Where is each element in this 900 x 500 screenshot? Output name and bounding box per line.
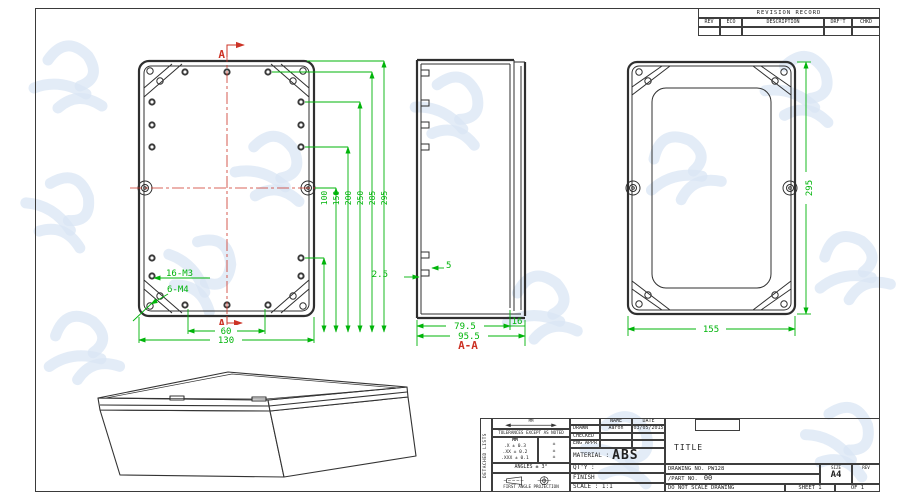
front-dimensions: 155 295 xyxy=(628,62,815,336)
boss-tabs xyxy=(421,70,429,276)
projection-cell: FIRST ANGLE PROJECTION xyxy=(492,473,570,492)
checked-name-cell xyxy=(600,433,632,440)
material-label: MATERIAL : xyxy=(573,453,609,460)
side-strip-label: DETACHED LISTS xyxy=(484,433,489,478)
revision-table: REVISION RECORD REV ECO DESCRIPTION DRF'… xyxy=(698,8,880,36)
label-6-M4: 6-M4 xyxy=(167,285,189,295)
logo-box xyxy=(695,419,740,431)
angles-cell: ANGLES ± 3° xyxy=(492,463,570,473)
eng-appr-label: ENG APPR xyxy=(570,440,600,448)
section-title: A-A xyxy=(458,339,478,352)
section-letter-top: A xyxy=(218,48,225,61)
tolerance-values: MM .X ± 0.3 .XX ± 0.2 .XXX ± 0.1 xyxy=(492,437,538,463)
section-dimensions: 5 2.5 79.5 16 95.5 xyxy=(372,261,525,346)
tolerance-note: TOLERANCES EXCEPT AS NOTED xyxy=(492,429,570,437)
dim-2-5: 2.5 xyxy=(372,270,388,280)
name-header: NAME xyxy=(600,418,632,425)
eco-empty-cell xyxy=(720,27,742,36)
lid-outline xyxy=(652,88,771,288)
isometric-view xyxy=(98,372,416,477)
drawing-no-cell: DRAWING NO. PW128 xyxy=(665,464,820,474)
blank-header-cell xyxy=(570,418,600,425)
units-arrow-icon xyxy=(503,423,559,428)
section-view: 5 2.5 79.5 16 95.5 A-A xyxy=(372,60,525,352)
part-no-value: 00 xyxy=(704,475,712,483)
drawn-name: Aaron xyxy=(600,425,632,433)
date-header: DATE xyxy=(632,418,665,425)
chkd-empty-cell xyxy=(852,27,880,36)
finish-cell: FINISH xyxy=(570,473,665,483)
section-outline xyxy=(417,60,525,318)
part-no-cell: /PART NO. 00 xyxy=(665,474,820,484)
tolerance-row-3: .XXX ± 0.1 xyxy=(493,456,537,462)
material-cell: MATERIAL : ABS xyxy=(570,448,665,464)
checked-date-cell xyxy=(632,433,665,440)
dim-295-left: 295 xyxy=(380,191,389,206)
material-value: ABS xyxy=(612,449,638,463)
size-value: A4 xyxy=(831,471,842,481)
dim-150: 150 xyxy=(332,191,341,206)
description-col-header: DESCRIPTION xyxy=(742,18,824,27)
projection-label: FIRST ANGLE PROJECTION xyxy=(503,485,558,490)
sheet-cell: SHEET 1 xyxy=(785,484,835,492)
rev-cell: REV xyxy=(852,464,880,484)
drft-col-header: DRF'T xyxy=(824,18,852,27)
dim-5: 5 xyxy=(446,261,451,271)
dim-285: 285 xyxy=(368,191,377,206)
dim-295-right: 295 xyxy=(805,180,815,196)
drawn-label: DRAWN xyxy=(570,425,600,433)
units-cell: MM xyxy=(492,418,570,429)
section-marker-top: A xyxy=(218,45,244,61)
rev-empty-cell xyxy=(698,27,720,36)
chkd-col-header: CHKD xyxy=(852,18,880,27)
checked-label: CHECKED xyxy=(570,433,600,440)
front-view: 155 295 xyxy=(626,62,815,336)
dim-130: 130 xyxy=(218,336,234,346)
eco-col-header: ECO xyxy=(720,18,742,27)
part-no-label: /PART NO. xyxy=(668,476,698,482)
title-block: DETACHED LISTS MM TOLERANCES EXCEPT AS N… xyxy=(480,418,880,492)
height-dimensions: 100 150 200 250 285 295 xyxy=(272,61,389,332)
label-16-M3: 16-M3 xyxy=(166,269,193,279)
revision-table-title: REVISION RECORD xyxy=(698,8,880,18)
side-strip: DETACHED LISTS xyxy=(480,418,492,492)
dim-200: 200 xyxy=(344,191,353,206)
eng-appr-name-cell xyxy=(600,440,632,448)
tolerance-marks: ± ± ± xyxy=(538,437,570,463)
do-not-scale-note: DO NOT SCALE DRAWING xyxy=(665,484,785,492)
back-view: A A 100 150 200 250 285 295 xyxy=(130,45,389,346)
dim-100: 100 xyxy=(320,191,329,206)
of-cell: OF 1 xyxy=(835,484,880,492)
qty-cell: QT'Y : xyxy=(570,464,665,473)
drawn-date: 03/05/2015 xyxy=(632,425,665,433)
size-cell: SIZE A4 xyxy=(820,464,852,484)
scale-cell: SCALE : 1:1 xyxy=(570,483,665,492)
rev-col-header: REV xyxy=(698,18,720,27)
tolerance-mark-3: ± xyxy=(539,455,569,461)
corner-braces-front xyxy=(632,66,791,310)
dim-250: 250 xyxy=(356,191,365,206)
description-empty-cell xyxy=(742,27,824,36)
drft-empty-cell xyxy=(824,27,852,36)
dim-155: 155 xyxy=(703,325,719,335)
eng-appr-date-cell xyxy=(632,440,665,448)
width-dimensions: 60 130 xyxy=(139,309,314,346)
dim-16: 16 xyxy=(512,317,523,327)
